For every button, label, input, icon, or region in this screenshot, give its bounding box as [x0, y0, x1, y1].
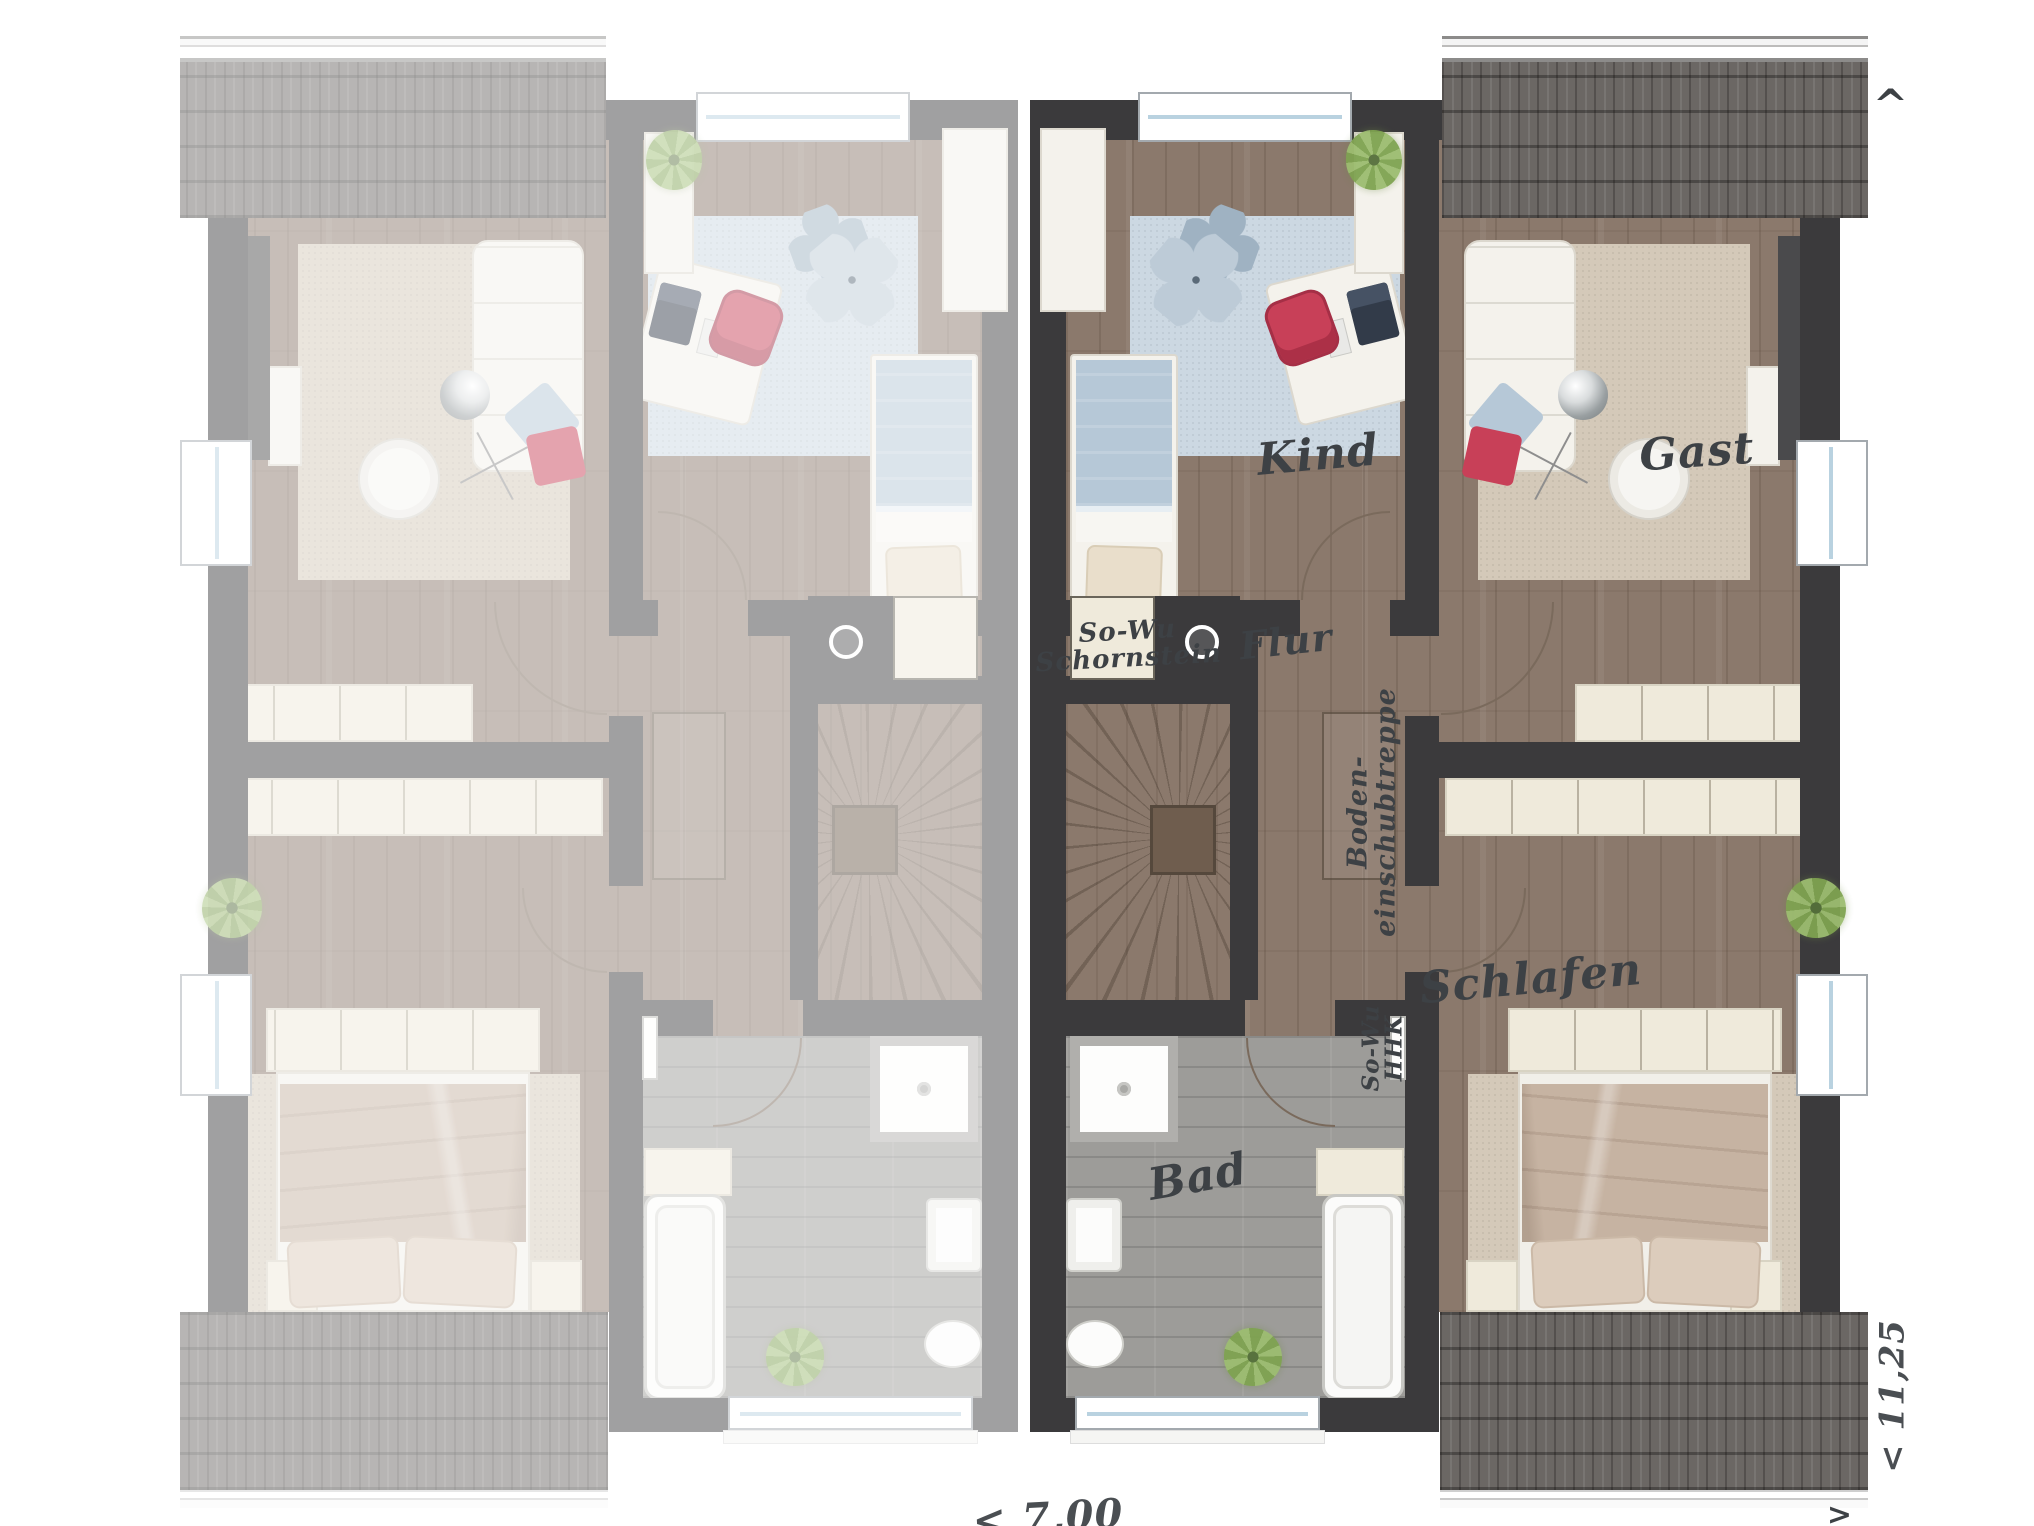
- plant-icon: [1786, 878, 1846, 938]
- door-arc: [1439, 600, 1555, 716]
- roof-gutter: [180, 1490, 608, 1508]
- winder-staircase: [818, 704, 982, 1000]
- wall-segment: [1405, 778, 1439, 886]
- shower-tray: [1070, 1036, 1178, 1142]
- window: [1138, 92, 1352, 142]
- plant-icon: [1346, 130, 1402, 190]
- roof-ridge: [180, 36, 606, 62]
- bathtub: [644, 1194, 726, 1400]
- chimney-block: [893, 596, 978, 680]
- window: [1796, 440, 1868, 566]
- bathtub: [1322, 1194, 1404, 1400]
- bed-pillow: [286, 1235, 401, 1309]
- stair-newel-post: [1150, 805, 1216, 875]
- roof-tiles: [180, 1312, 608, 1490]
- bed-headboard-panels: [266, 1008, 540, 1072]
- window-sill: [723, 1430, 978, 1444]
- window-glass: [215, 447, 219, 559]
- wall-segment: [208, 742, 643, 778]
- window: [180, 974, 252, 1096]
- radiator: [1390, 1016, 1406, 1080]
- wall-segment: [609, 140, 643, 600]
- plant-icon: [202, 878, 262, 938]
- plant-icon: [646, 130, 702, 190]
- roof-tiles: [1440, 1312, 1868, 1490]
- plant-icon: [766, 1328, 824, 1386]
- bath-shelf: [1316, 1148, 1404, 1196]
- wardrobe: [223, 778, 603, 836]
- door-arc: [1300, 510, 1392, 602]
- wardrobe: [1575, 684, 1825, 742]
- bed-pillow: [1646, 1235, 1761, 1309]
- wall-segment: [1405, 972, 1439, 1432]
- door-arc: [1245, 1036, 1337, 1128]
- wall-segment: [609, 600, 658, 636]
- wall-segment: [1066, 1000, 1245, 1036]
- kids-bed-sheet: [1076, 512, 1172, 542]
- floor-lamp: [440, 370, 490, 420]
- tv-sideboard: [1778, 236, 1800, 460]
- wardrobe: [1445, 778, 1825, 836]
- bed-pillow: [1530, 1235, 1645, 1309]
- tv-sideboard: [248, 236, 270, 460]
- roof-ridge: [1442, 36, 1868, 62]
- window: [696, 92, 910, 142]
- window: [180, 440, 252, 566]
- shower-tray: [870, 1036, 978, 1142]
- tall-cabinet: [1040, 128, 1106, 312]
- wall-segment: [790, 676, 1018, 704]
- dwelling-unit: [1030, 36, 1868, 1508]
- door-arc: [711, 1036, 803, 1128]
- stair-newel-post: [832, 805, 898, 875]
- roof-eaves-top: [180, 36, 606, 218]
- roof-tiles: [180, 62, 606, 218]
- right-dwelling: [1030, 36, 1868, 1508]
- window-glass: [706, 115, 899, 119]
- bath-shelf: [644, 1148, 732, 1196]
- door-arc: [493, 600, 609, 716]
- window-glass: [1087, 1412, 1309, 1416]
- wall-segment: [1030, 676, 1258, 704]
- wall-segment: [1405, 140, 1439, 600]
- dwelling-unit: [180, 36, 1018, 1508]
- sofa-pillow-red: [1461, 425, 1523, 487]
- wall-segment: [1390, 600, 1439, 636]
- toilet: [1066, 1320, 1124, 1368]
- wall-segment: [803, 1000, 982, 1036]
- nightstand: [530, 1260, 582, 1312]
- chimney: [1155, 596, 1240, 680]
- chimney-flue-icon: [1185, 625, 1219, 659]
- chimney-block: [1070, 596, 1155, 680]
- plant-icon: [1224, 1328, 1282, 1386]
- window-sill: [1070, 1430, 1325, 1444]
- tall-cabinet: [942, 128, 1008, 312]
- radiator: [642, 1016, 658, 1080]
- roof-eaves-bottom: [180, 1312, 608, 1508]
- floor-lamp: [1558, 370, 1608, 420]
- washbasin: [926, 1198, 982, 1272]
- door-arc: [521, 886, 609, 974]
- window-glass: [1829, 981, 1833, 1090]
- roof-tiles: [1442, 62, 1868, 218]
- nightstand: [1466, 1260, 1518, 1312]
- side-table: [1608, 438, 1690, 520]
- chimney: [808, 596, 893, 680]
- winder-staircase: [1066, 704, 1230, 1000]
- shower-drain: [1117, 1082, 1131, 1096]
- roof-eaves-top: [1442, 36, 1868, 218]
- attic-ladder-hatch: [652, 712, 726, 880]
- bathtub-basin: [655, 1205, 715, 1389]
- window-glass: [1829, 447, 1833, 559]
- wardrobe: [223, 684, 473, 742]
- shower-drain: [917, 1082, 931, 1096]
- kids-duvet: [876, 360, 972, 512]
- sofa-pillow-red: [525, 425, 587, 487]
- door-arc: [656, 510, 748, 602]
- floor-plan: Kind Gast Flur So-Wu Schornstein Boden- …: [0, 0, 2034, 1526]
- bed-headboard-panels: [1508, 1008, 1782, 1072]
- attic-ladder-hatch: [1322, 712, 1396, 880]
- window: [1075, 1396, 1320, 1430]
- window-glass: [215, 981, 219, 1090]
- wall-segment: [609, 972, 643, 1432]
- wall-segment: [609, 716, 643, 742]
- wall-segment: [1405, 716, 1439, 742]
- chimney-flue-icon: [830, 625, 864, 659]
- wall-segment: [1405, 742, 1840, 778]
- window: [1796, 974, 1868, 1096]
- side-table: [358, 438, 440, 520]
- window-glass: [1148, 115, 1341, 119]
- roof-eaves-bottom: [1440, 1312, 1868, 1508]
- kids-duvet: [1076, 360, 1172, 512]
- duvet: [1522, 1084, 1768, 1242]
- dimension-arrow-up-icon: ^: [1873, 85, 1909, 128]
- duvet: [280, 1084, 526, 1242]
- wall-segment: [609, 778, 643, 886]
- console-shelf: [268, 366, 302, 466]
- window: [728, 1396, 973, 1430]
- console-shelf: [1746, 366, 1780, 466]
- left-dwelling-faded: [180, 36, 1018, 1508]
- door-arc: [1439, 886, 1527, 974]
- roof-gutter: [1440, 1490, 1868, 1508]
- dimension-depth: < 11,25: [1876, 1319, 1911, 1473]
- bed-pillow: [402, 1235, 517, 1309]
- kids-bed-sheet: [876, 512, 972, 542]
- toilet: [924, 1320, 982, 1368]
- window-glass: [740, 1412, 962, 1416]
- washbasin: [1066, 1198, 1122, 1272]
- bathtub-basin: [1333, 1205, 1393, 1389]
